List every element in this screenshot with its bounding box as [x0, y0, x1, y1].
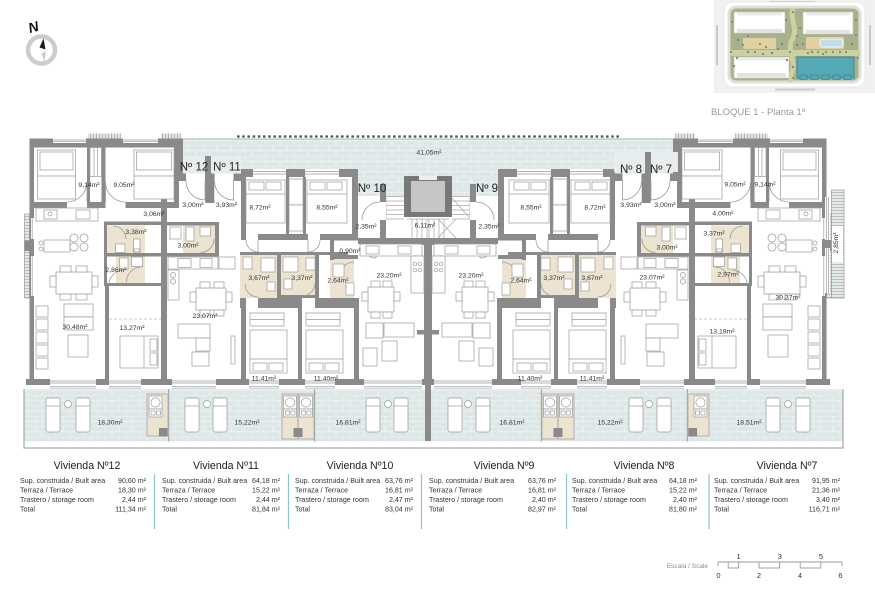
svg-text:Trastero / storage room: Trastero / storage room [572, 496, 646, 504]
svg-text:2,85m²: 2,85m² [833, 232, 840, 254]
svg-text:9,14m²: 9,14m² [78, 182, 100, 189]
svg-text:63,76 m²: 63,76 m² [385, 477, 414, 485]
svg-text:Total: Total [162, 506, 177, 514]
svg-text:Total: Total [20, 506, 35, 514]
svg-text:3,00m²: 3,00m² [656, 245, 678, 252]
svg-text:63,76 m²: 63,76 m² [528, 477, 557, 485]
svg-text:Sup. construida / Built area: Sup. construida / Built area [20, 477, 105, 485]
svg-text:2,97m²: 2,97m² [717, 272, 739, 279]
svg-text:3,37m²: 3,37m² [703, 231, 725, 238]
svg-text:2,64m²: 2,64m² [327, 278, 349, 285]
svg-text:8,55m²: 8,55m² [316, 205, 338, 212]
svg-text:3,93m²: 3,93m² [620, 202, 642, 209]
svg-text:3,67m²: 3,67m² [581, 275, 603, 282]
svg-text:2,47 m²: 2,47 m² [389, 496, 414, 504]
svg-text:3,38m²: 3,38m² [125, 229, 147, 236]
svg-text:13,27m²: 13,27m² [120, 325, 146, 332]
svg-text:90,60 m²: 90,60 m² [118, 477, 147, 485]
svg-text:2,40 m²: 2,40 m² [532, 496, 557, 504]
svg-text:15,22m²: 15,22m² [235, 420, 261, 427]
svg-text:Nº 8: Nº 8 [620, 164, 642, 176]
svg-text:83,04 m²: 83,04 m² [385, 506, 414, 514]
svg-text:64,18 m²: 64,18 m² [669, 477, 698, 485]
svg-text:Vivienda Nº10: Vivienda Nº10 [327, 460, 394, 472]
svg-text:2,35m²: 2,35m² [478, 224, 500, 231]
svg-text:Vivienda Nº9: Vivienda Nº9 [474, 460, 535, 472]
svg-text:23,07m²: 23,07m² [193, 313, 219, 320]
svg-text:91,95 m²: 91,95 m² [812, 477, 841, 485]
svg-text:18,30 m²: 18,30 m² [118, 487, 147, 495]
svg-text:Nº 10: Nº 10 [358, 183, 387, 195]
svg-text:Vivienda Nº12: Vivienda Nº12 [54, 460, 121, 472]
svg-text:9,14m²: 9,14m² [754, 182, 776, 189]
svg-text:Vivienda Nº11: Vivienda Nº11 [193, 460, 259, 472]
svg-text:3,00m²: 3,00m² [177, 243, 199, 250]
svg-text:3,40 m²: 3,40 m² [816, 496, 841, 504]
svg-text:4: 4 [798, 571, 802, 580]
svg-text:2,86m²: 2,86m² [105, 267, 127, 274]
svg-text:23,20m²: 23,20m² [459, 273, 485, 280]
svg-text:Terraza / Terrace: Terraza / Terrace [429, 487, 482, 495]
svg-text:Trastero / storage room: Trastero / storage room [162, 496, 236, 504]
svg-text:3,00m²: 3,00m² [654, 202, 676, 209]
svg-text:Trastero / storage room: Trastero / storage room [429, 496, 503, 504]
svg-text:2,44 m²: 2,44 m² [122, 496, 147, 504]
svg-text:Trastero / storage room: Trastero / storage room [714, 496, 788, 504]
svg-text:15,22 m²: 15,22 m² [252, 487, 281, 495]
svg-text:Terraza / Terrace: Terraza / Terrace [572, 487, 625, 495]
svg-text:Sup. construida / Built area: Sup. construida / Built area [572, 477, 657, 485]
svg-text:1: 1 [737, 552, 741, 561]
svg-text:9,05m²: 9,05m² [113, 182, 135, 189]
svg-text:Total: Total [295, 506, 310, 514]
svg-text:82,97 m²: 82,97 m² [528, 506, 557, 514]
svg-text:11,41m²: 11,41m² [252, 376, 277, 383]
svg-text:3,00m²: 3,00m² [182, 202, 204, 209]
svg-text:23,07m²: 23,07m² [640, 275, 666, 282]
svg-text:Nº 11: Nº 11 [213, 162, 241, 174]
svg-text:2,64m²: 2,64m² [510, 278, 532, 285]
svg-text:8,55m²: 8,55m² [520, 205, 542, 212]
svg-text:Sup. construida / Built area: Sup. construida / Built area [429, 477, 514, 485]
svg-text:Sup. construida / Built area: Sup. construida / Built area [295, 477, 380, 485]
svg-text:23,20m²: 23,20m² [377, 273, 403, 280]
svg-text:11,41m²: 11,41m² [580, 376, 605, 383]
svg-text:Nº 12: Nº 12 [180, 162, 209, 174]
svg-text:9,05m²: 9,05m² [724, 182, 746, 189]
svg-text:15,22m²: 15,22m² [598, 420, 624, 427]
svg-text:3,37m²: 3,37m² [291, 275, 313, 282]
svg-text:81,80 m²: 81,80 m² [669, 506, 698, 514]
svg-text:Sup. construida / Built area: Sup. construida / Built area [162, 477, 247, 485]
svg-text:3,37m²: 3,37m² [543, 275, 565, 282]
svg-text:3: 3 [778, 552, 782, 561]
svg-text:Trastero / storage room: Trastero / storage room [295, 496, 369, 504]
svg-text:0: 0 [716, 571, 720, 580]
svg-text:2,40 m²: 2,40 m² [673, 496, 698, 504]
svg-text:6: 6 [838, 571, 842, 580]
svg-text:16,81 m²: 16,81 m² [385, 487, 414, 495]
svg-text:111,34 m²: 111,34 m² [115, 506, 147, 514]
svg-text:Sup. construida / Built area: Sup. construida / Built area [714, 477, 799, 485]
svg-text:18,51m²: 18,51m² [737, 420, 763, 427]
svg-text:2: 2 [757, 571, 761, 580]
svg-text:Trastero / storage room: Trastero / storage room [20, 496, 94, 504]
svg-text:18,30m²: 18,30m² [98, 420, 124, 427]
svg-text:6,11m²: 6,11m² [415, 223, 436, 230]
svg-text:21,36 m²: 21,36 m² [812, 487, 841, 495]
svg-text:11,40m²: 11,40m² [518, 376, 543, 383]
svg-text:16,81m²: 16,81m² [336, 420, 362, 427]
svg-text:3,06m²: 3,06m² [143, 211, 165, 218]
svg-text:11,40m²: 11,40m² [314, 376, 339, 383]
svg-text:0,90m²: 0,90m² [339, 248, 361, 255]
svg-text:13,19m²: 13,19m² [710, 329, 736, 336]
svg-text:Terraza / Terrace: Terraza / Terrace [20, 487, 73, 495]
svg-text:41,05m²: 41,05m² [417, 150, 443, 157]
svg-text:2,44 m²: 2,44 m² [256, 496, 281, 504]
svg-text:Nº 7: Nº 7 [650, 164, 672, 176]
svg-text:Terraza / Terrace: Terraza / Terrace [714, 487, 767, 495]
svg-text:Terraza / Terrace: Terraza / Terrace [295, 487, 348, 495]
svg-text:3,93m²: 3,93m² [216, 202, 238, 209]
svg-text:Vivienda Nº8: Vivienda Nº8 [614, 460, 675, 472]
svg-text:4,00m²: 4,00m² [712, 211, 734, 218]
svg-text:Nº 9: Nº 9 [476, 183, 498, 195]
svg-text:3,67m²: 3,67m² [248, 275, 270, 282]
svg-text:30,48m²: 30,48m² [63, 324, 89, 331]
svg-text:30,37m²: 30,37m² [776, 295, 802, 302]
svg-text:Terraza / Terrace: Terraza / Terrace [162, 487, 215, 495]
svg-text:2,35m²: 2,35m² [355, 224, 377, 231]
svg-text:81,84 m²: 81,84 m² [252, 506, 281, 514]
svg-text:Vivienda Nº7: Vivienda Nº7 [757, 460, 818, 472]
svg-text:64,18 m²: 64,18 m² [252, 477, 281, 485]
svg-text:BLOQUE 1 - Planta 1º: BLOQUE 1 - Planta 1º [711, 107, 806, 118]
svg-text:8,72m²: 8,72m² [584, 205, 606, 212]
svg-text:Total: Total [429, 506, 444, 514]
svg-text:16,81m²: 16,81m² [500, 420, 526, 427]
svg-text:Total: Total [714, 506, 729, 514]
svg-text:Total: Total [572, 506, 587, 514]
svg-text:5: 5 [819, 552, 823, 561]
svg-text:15,22 m²: 15,22 m² [669, 487, 698, 495]
svg-text:116,71 m²: 116,71 m² [809, 506, 841, 514]
svg-text:16,81 m²: 16,81 m² [528, 487, 557, 495]
svg-text:8,72m²: 8,72m² [249, 205, 271, 212]
svg-text:Escala / Scale: Escala / Scale [667, 563, 709, 570]
